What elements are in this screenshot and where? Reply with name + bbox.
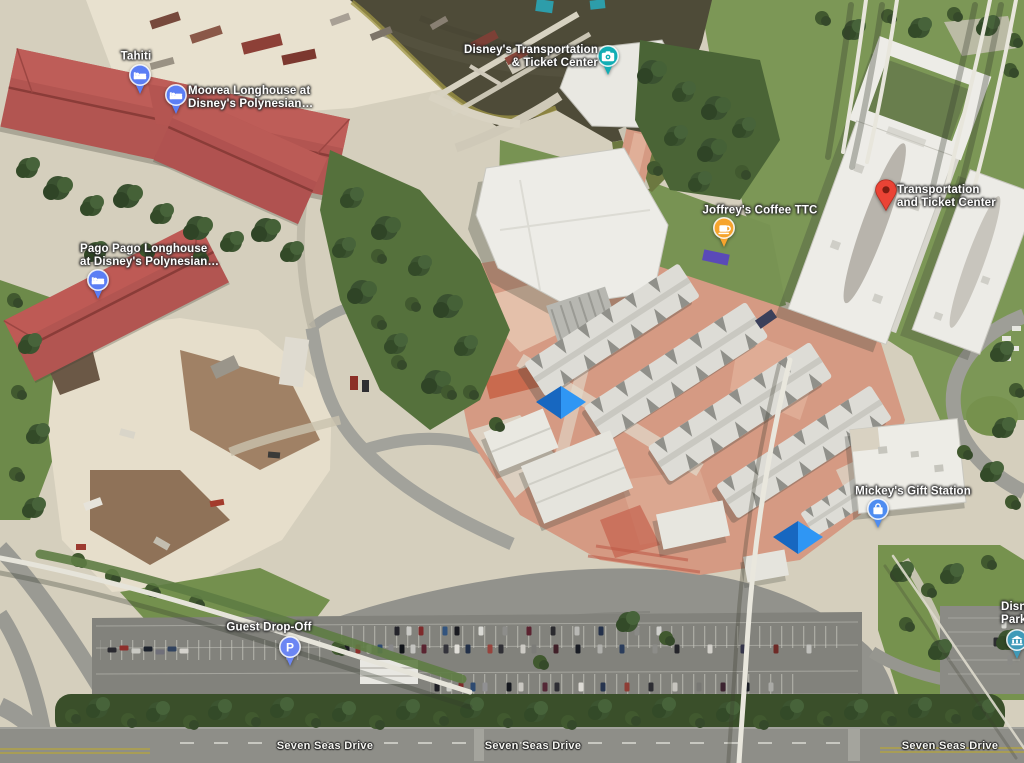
road-label-seven-seas-1: Seven Seas Drive xyxy=(277,740,374,752)
poi-pin-mickeys-gift[interactable] xyxy=(866,497,890,530)
poi-label-ttc-ferry[interactable]: Disney's Transportation & Ticket Center xyxy=(464,44,598,70)
poi-label-pago-pago[interactable]: Pago Pago Longhouse at Disney's Polynesi… xyxy=(80,243,219,269)
road-label-seven-seas-2: Seven Seas Drive xyxy=(485,740,582,752)
red-map-pin xyxy=(876,180,897,211)
poi-pin-edge-partial[interactable] xyxy=(1005,628,1024,661)
road-label-seven-seas-3: Seven Seas Drive xyxy=(902,740,999,752)
poi-pin-moorea[interactable] xyxy=(164,83,188,116)
poi-label-ttc-marker[interactable]: Transportation and Ticket Center xyxy=(897,184,996,210)
poi-label-edge-partial[interactable]: Disn Park xyxy=(1001,601,1024,627)
poi-label-tahiti[interactable]: Tahiti xyxy=(121,51,152,64)
poi-pin-ttc-ferry[interactable] xyxy=(596,44,620,77)
parking-icon: P xyxy=(286,640,294,654)
poi-label-moorea[interactable]: Moorea Longhouse at Disney's Polynesian… xyxy=(188,85,313,111)
poi-pin-tahiti[interactable] xyxy=(128,63,152,96)
svg-text:P: P xyxy=(286,640,294,654)
poi-pin-pago-pago[interactable] xyxy=(86,268,110,301)
poi-label-mickeys-gift[interactable]: Mickey's Gift Station xyxy=(855,486,971,499)
poi-label-guest-dropoff[interactable]: Guest Drop-Off xyxy=(226,622,311,635)
map-viewport[interactable]: P Tahiti Moorea Longhouse at Disney's Po… xyxy=(0,0,1024,763)
poi-label-joffreys[interactable]: Joffrey's Coffee TTC xyxy=(702,205,817,218)
gift-station-building xyxy=(844,419,967,520)
satellite-canvas[interactable] xyxy=(0,0,1024,763)
poi-pin-ttc-marker[interactable] xyxy=(873,178,899,212)
poi-pin-guest-dropoff[interactable]: P xyxy=(278,635,302,668)
poi-pin-joffreys[interactable] xyxy=(712,216,736,249)
